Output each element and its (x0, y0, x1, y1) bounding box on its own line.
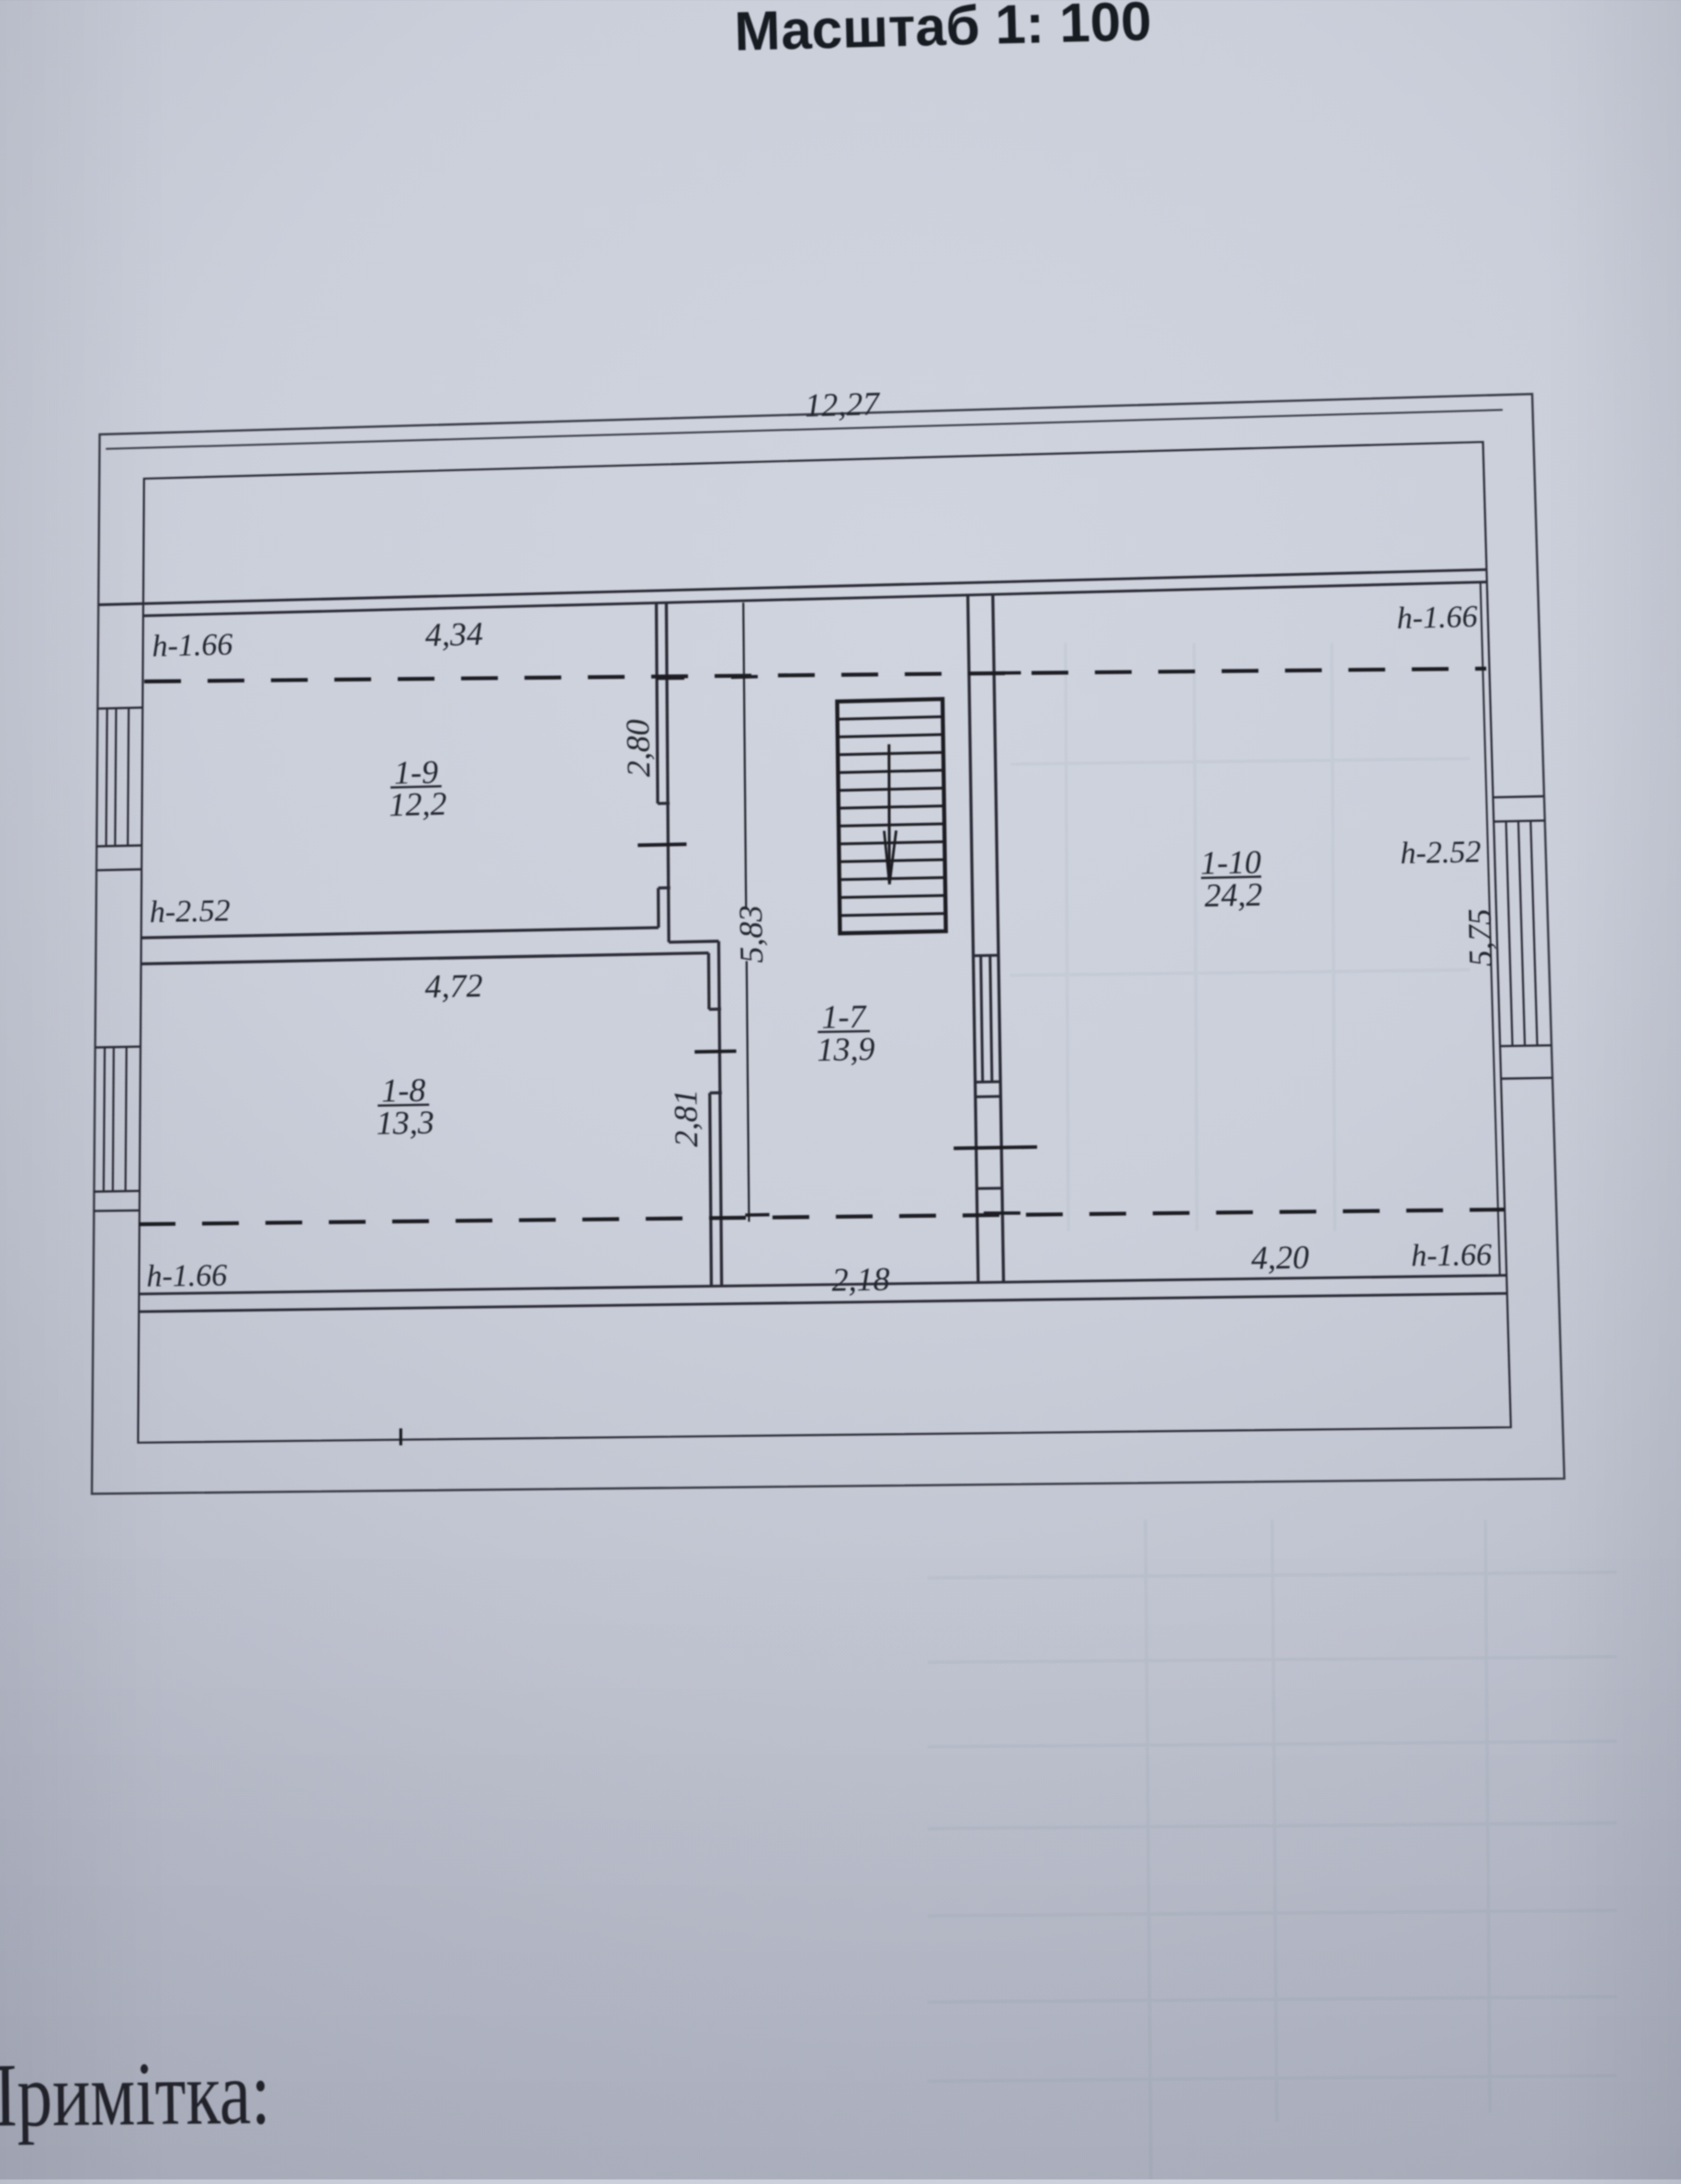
svg-text:4,34: 4,34 (424, 615, 483, 654)
svg-text:4,20: 4,20 (1251, 1239, 1310, 1277)
svg-text:5,75: 5,75 (1461, 908, 1498, 967)
svg-text:h-2.52: h-2.52 (149, 894, 231, 929)
svg-text:h-1.66: h-1.66 (146, 1258, 227, 1293)
svg-text:4,72: 4,72 (424, 967, 483, 1005)
svg-text:2,81: 2,81 (667, 1089, 705, 1148)
svg-text:h-1.66: h-1.66 (152, 627, 233, 663)
svg-text:2,18: 2,18 (831, 1261, 890, 1299)
svg-text:5,83: 5,83 (732, 905, 770, 963)
svg-text:h-2.52: h-2.52 (1400, 835, 1482, 871)
svg-text:13,9: 13,9 (817, 1030, 875, 1068)
svg-text:h-1.66: h-1.66 (1396, 600, 1478, 636)
svg-text:24,2: 24,2 (1204, 876, 1263, 914)
svg-text:13,3: 13,3 (376, 1104, 434, 1142)
svg-text:2,80: 2,80 (619, 719, 657, 778)
svg-text:Масштаб 1: 100: Масштаб 1: 100 (734, 0, 1153, 62)
svg-text:12,27: 12,27 (805, 385, 882, 423)
svg-text:Примітка:: Примітка: (0, 2043, 271, 2147)
svg-text:h-1.66: h-1.66 (1411, 1238, 1492, 1273)
svg-text:12,2: 12,2 (389, 785, 447, 823)
